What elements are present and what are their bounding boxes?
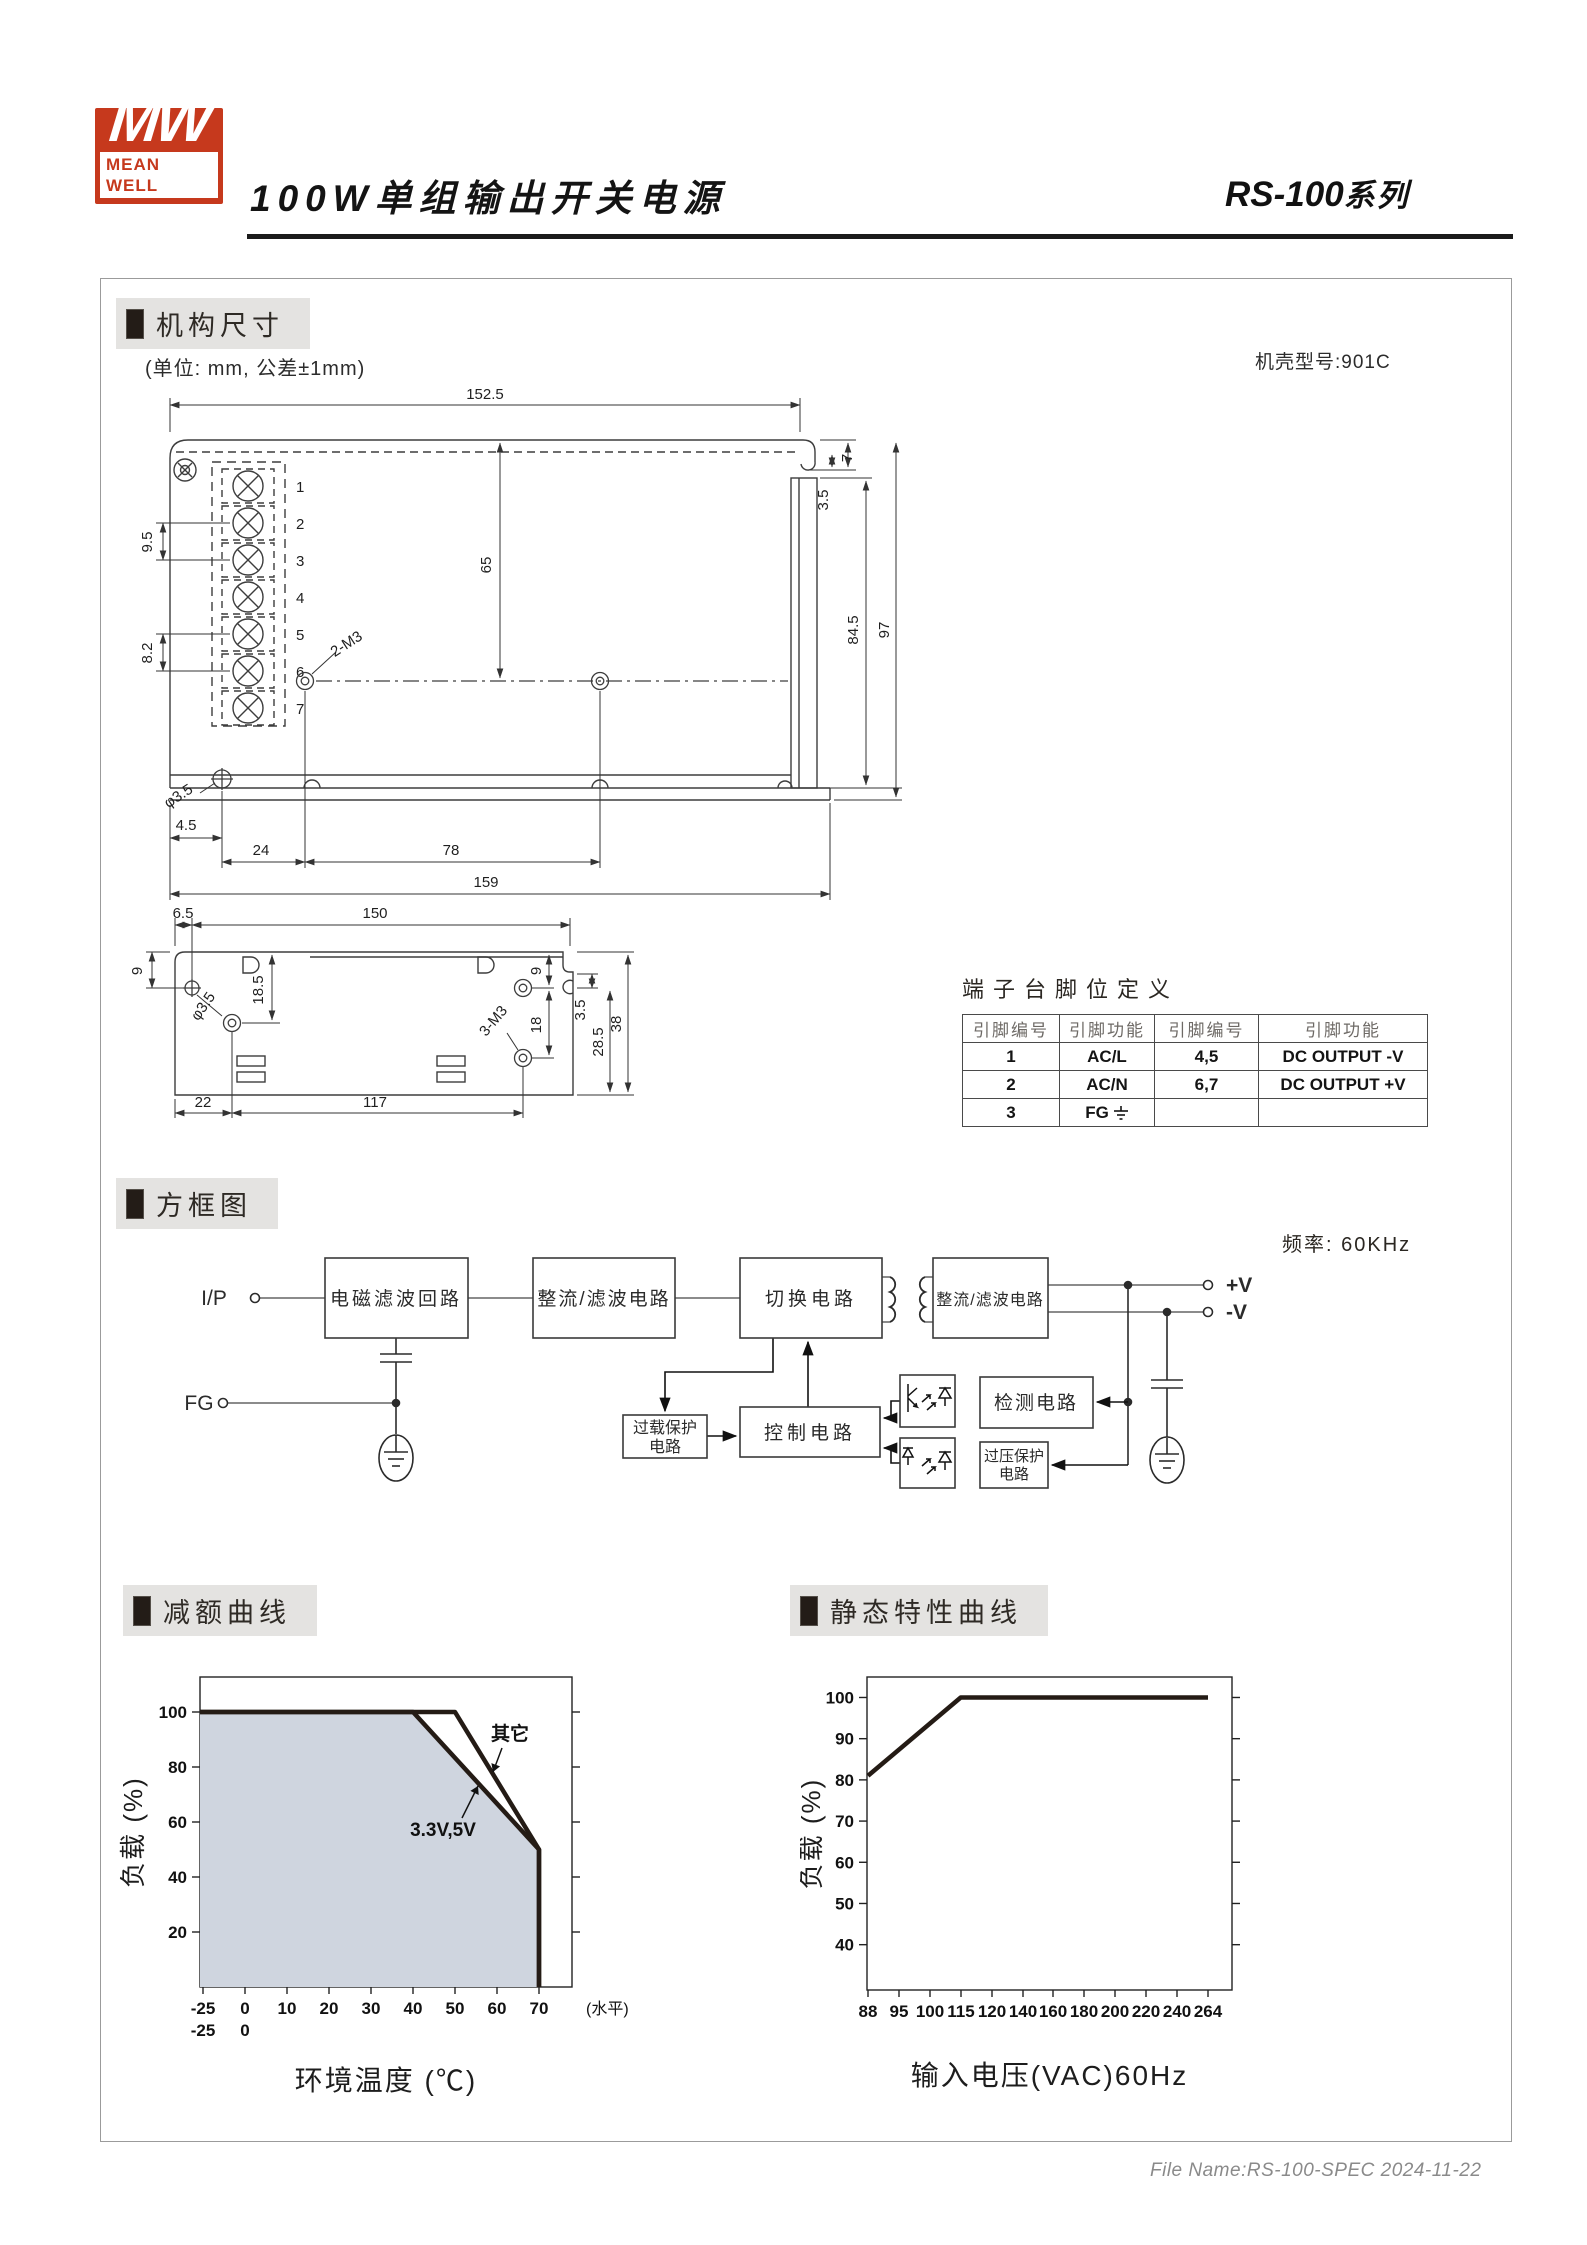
transformer-icon (890, 1277, 925, 1322)
dim-base-total: 159 (473, 874, 498, 891)
front-dim-labels: 152.5 7 3.5 65 84.5 97 9.5 8.2 2-M3 φ3.5… (139, 388, 893, 891)
y-tick-label: 70 (835, 1812, 854, 1831)
dim-height: 38 (608, 1016, 625, 1033)
table-row: 1 AC/L 4,5 DC OUTPUT -V (963, 1043, 1428, 1071)
dim-pin-pitch2: 8.2 (139, 643, 156, 664)
x-tick-label: 220 (1132, 2002, 1160, 2021)
y-tick-label: 20 (168, 1923, 187, 1942)
section-mechanical: 机构尺寸 (116, 298, 310, 349)
x-tick-label-2: 0 (240, 2021, 249, 2040)
header-rule (247, 234, 1513, 239)
dim-right-pitch: 18 (528, 1017, 545, 1034)
series-area (200, 1712, 539, 1987)
section-mechanical-label: 机构尺寸 (156, 304, 284, 343)
dim-hole-span: 65 (478, 557, 495, 574)
terminal-table-block: 端子台脚位定义 引脚编号 引脚功能 引脚编号 引脚功能 1 AC/L 4,5 D… (962, 972, 1428, 1127)
dim-top-gap2: 3.5 (815, 490, 832, 511)
dim-base-b: 78 (443, 842, 460, 859)
section-bullet-icon (800, 1596, 818, 1626)
input-label: I/P (201, 1287, 227, 1310)
pin-number: 3 (296, 553, 304, 570)
tt-header: 引脚编号 (1155, 1015, 1259, 1043)
dim-hole-dia: φ3.5 (161, 781, 196, 812)
annotation-label: 其它 (491, 1722, 529, 1745)
tt-cell: 4,5 (1155, 1043, 1259, 1071)
tt-cell: 3 (963, 1099, 1060, 1127)
y-tick-label: 40 (835, 1936, 854, 1955)
block-ovp-2: 电路 (999, 1466, 1029, 1483)
section-derating: 减额曲线 (123, 1585, 317, 1636)
x-tick-label: 100 (916, 2002, 944, 2021)
tt-cell: AC/L (1060, 1043, 1155, 1071)
section-static-label: 静态特性曲线 (830, 1591, 1022, 1630)
dim-screw-callout: 3-M3 (476, 1003, 511, 1040)
tt-cell: DC OUTPUT +V (1259, 1071, 1428, 1099)
x-tick-label: 70 (530, 1999, 549, 2018)
dim-lip: 3.5 (572, 1000, 589, 1021)
x-tick-label: 10 (278, 1999, 297, 2018)
dim-left-hole: 18.5 (250, 975, 267, 1004)
dim-width: 152.5 (466, 388, 504, 403)
terminal-pins (222, 469, 274, 725)
x-tick-label: 264 (1194, 2002, 1223, 2021)
tt-cell: AC/N (1060, 1071, 1155, 1099)
tt-cell (1155, 1099, 1259, 1127)
pin-number: 1 (296, 479, 304, 496)
section-derating-label: 减额曲线 (163, 1591, 291, 1630)
meanwell-logo: MW MEAN WELL (95, 108, 223, 204)
dim-base-a: 24 (253, 842, 270, 859)
tt-cell-fg: FG (1060, 1099, 1155, 1127)
datasheet-page: MW MEAN WELL 100W单组输出开关电源 RS-100系列 机构尺寸 … (0, 0, 1587, 2245)
x-tick-label: 240 (1163, 2002, 1191, 2021)
y-tick-label: 100 (826, 1688, 854, 1707)
x-tick-label: 95 (890, 2002, 909, 2021)
fg-ground-branch (379, 1338, 413, 1481)
table-row: 3 FG (963, 1099, 1428, 1127)
tt-header: 引脚功能 (1060, 1015, 1155, 1043)
tt-header: 引脚功能 (1259, 1015, 1428, 1043)
bottom-dimensions (146, 918, 634, 1118)
derating-chart: -25010203040506070-250(水平)20406080100其它3… (110, 1660, 800, 2145)
y-axis-label: 负载 (%) (118, 1776, 148, 1888)
dim-screw-callout: 2-M3 (328, 628, 366, 661)
front-mounting-holes (211, 673, 788, 791)
bottom-view-outline (175, 952, 573, 1095)
x-tick-label: 88 (859, 2002, 878, 2021)
x-tick-label: 140 (1009, 2002, 1037, 2021)
series-title: RS-100系列 (1225, 170, 1410, 215)
static-curve-chart: 8895100115120140160180200220240264405060… (800, 1660, 1340, 2145)
tt-cell: 1 (963, 1043, 1060, 1071)
series-suffix: 系列 (1344, 178, 1410, 213)
chart-svg: 8895100115120140160180200220240264405060… (800, 1660, 1340, 2140)
x-tick-label: 50 (446, 1999, 465, 2018)
pin-number: 4 (296, 590, 304, 607)
vminus-label: -V (1226, 1301, 1247, 1324)
tt-cell: 6,7 (1155, 1071, 1259, 1099)
bottom-dim-labels: 6.5 150 9 18.5 φ3.5 3-M3 9 18 3.5 28.5 3… (129, 905, 625, 1111)
plot-box (867, 1677, 1232, 1990)
y-tick-label: 40 (168, 1868, 187, 1887)
y-tick-label: 50 (835, 1894, 854, 1913)
x-tick-label: 200 (1101, 2002, 1129, 2021)
tt-cell (1259, 1099, 1428, 1127)
y-tick-label: 100 (159, 1703, 187, 1722)
y-tick-label: 80 (835, 1771, 854, 1790)
table-row: 2 AC/N 6,7 DC OUTPUT +V (963, 1071, 1428, 1099)
section-bullet-icon (126, 1189, 144, 1219)
dim-right-top: 9 (528, 967, 545, 975)
dim-h-outer: 97 (876, 622, 893, 639)
terminal-table: 引脚编号 引脚功能 引脚编号 引脚功能 1 AC/L 4,5 DC OUTPUT… (962, 1014, 1428, 1127)
x-tick-label: 115 (947, 2002, 974, 2021)
logo-mw-monogram: MW (107, 93, 212, 149)
section-static: 静态特性曲线 (790, 1585, 1048, 1636)
block-ovp-1: 过压保护 (984, 1448, 1044, 1465)
block-detection: 检测电路 (994, 1392, 1078, 1414)
x-tick-label: 120 (978, 2002, 1006, 2021)
dim-width: 150 (362, 905, 387, 922)
block-diagram: I/P FG +V -V 电磁滤波回路 整流/滤波电路 切换电路 整流/滤波电路… (100, 1215, 1440, 1525)
section-bullet-icon (133, 1596, 151, 1626)
x-tick-label: 160 (1039, 2002, 1067, 2021)
x-tick-label: -25 (191, 1999, 216, 2018)
block-emi: 电磁滤波回路 (330, 1288, 462, 1310)
mechanical-drawing: 1 2 3 4 5 6 7 (100, 388, 960, 1148)
logo-brand-name: MEAN WELL (100, 152, 218, 198)
terminal-table-title: 端子台脚位定义 (962, 972, 1428, 1004)
dim-left-top: 9 (129, 967, 146, 975)
vplus-label: +V (1226, 1274, 1252, 1297)
earth-ground-icon (1113, 1106, 1129, 1120)
pin-number: 7 (296, 701, 304, 718)
x-tick-label: 180 (1070, 2002, 1098, 2021)
series-code: RS-100 (1225, 175, 1344, 214)
front-dimensions (156, 398, 902, 900)
chart-svg: -25010203040506070-250(水平)20406080100其它3… (110, 1660, 800, 2140)
x-tick-label: 40 (404, 1999, 423, 2018)
pin-number: 5 (296, 627, 304, 644)
block-rectifier-out: 整流/滤波电路 (936, 1291, 1043, 1309)
x-tick-label: 60 (488, 1999, 507, 2018)
fg-label: FG (1085, 1103, 1109, 1122)
y-axis-label: 负载 (%) (800, 1778, 826, 1890)
block-rectifier-in: 整流/滤波电路 (537, 1288, 670, 1310)
dim-base-a: 22 (195, 1094, 212, 1111)
series-line-load (868, 1697, 1208, 1775)
x-axis-label: 环境温度 (℃) (295, 2065, 477, 2096)
x-tick-label: 30 (362, 1999, 381, 2018)
block-overload-1: 过载保护 (633, 1419, 697, 1437)
y-tick-label: 80 (168, 1758, 187, 1777)
dim-h-inner: 84.5 (845, 615, 862, 644)
x-tick-label-2: -25 (191, 2021, 216, 2040)
section-bullet-icon (126, 309, 144, 339)
annotation-label: 3.3V,5V (410, 1820, 476, 1841)
x-tick-label: 0 (240, 1999, 249, 2018)
footer-filename: File Name:RS-100-SPEC 2024-11-22 (1150, 2160, 1481, 2182)
page-title: 100W单组输出开关电源 (250, 168, 727, 222)
x-tick-label: 20 (320, 1999, 339, 2018)
fg-label: FG (184, 1392, 213, 1415)
block-overload-2: 电路 (649, 1438, 681, 1456)
dim-base-b: 117 (363, 1094, 387, 1111)
block-control: 控制电路 (764, 1422, 856, 1444)
tt-cell: DC OUTPUT -V (1259, 1043, 1428, 1071)
pin-numbers: 1 2 3 4 5 6 7 (296, 479, 304, 718)
dim-pin-pitch: 9.5 (139, 532, 156, 553)
pin-number: 2 (296, 516, 304, 533)
x-axis-label: 输入电压(VAC)60Hz (911, 2060, 1189, 2091)
x-axis-suffix: (水平) (586, 2000, 629, 2018)
dim-offset: 6.5 (173, 905, 194, 922)
tt-header: 引脚编号 (963, 1015, 1060, 1043)
bottom-mounting-holes (183, 979, 532, 1067)
block-switching: 切换电路 (765, 1288, 857, 1310)
dim-right-lower: 28.5 (590, 1027, 607, 1056)
tt-cell: 2 (963, 1071, 1060, 1099)
y-tick-label: 60 (835, 1853, 854, 1872)
unit-note: (单位: mm, 公差±1mm) (145, 352, 365, 381)
case-model: 机壳型号:901C (1255, 347, 1391, 374)
dim-base-offset: 4.5 (176, 817, 197, 834)
dim-top-gap: 7 (839, 454, 856, 462)
y-tick-label: 90 (835, 1730, 854, 1749)
y-tick-label: 60 (168, 1813, 187, 1832)
